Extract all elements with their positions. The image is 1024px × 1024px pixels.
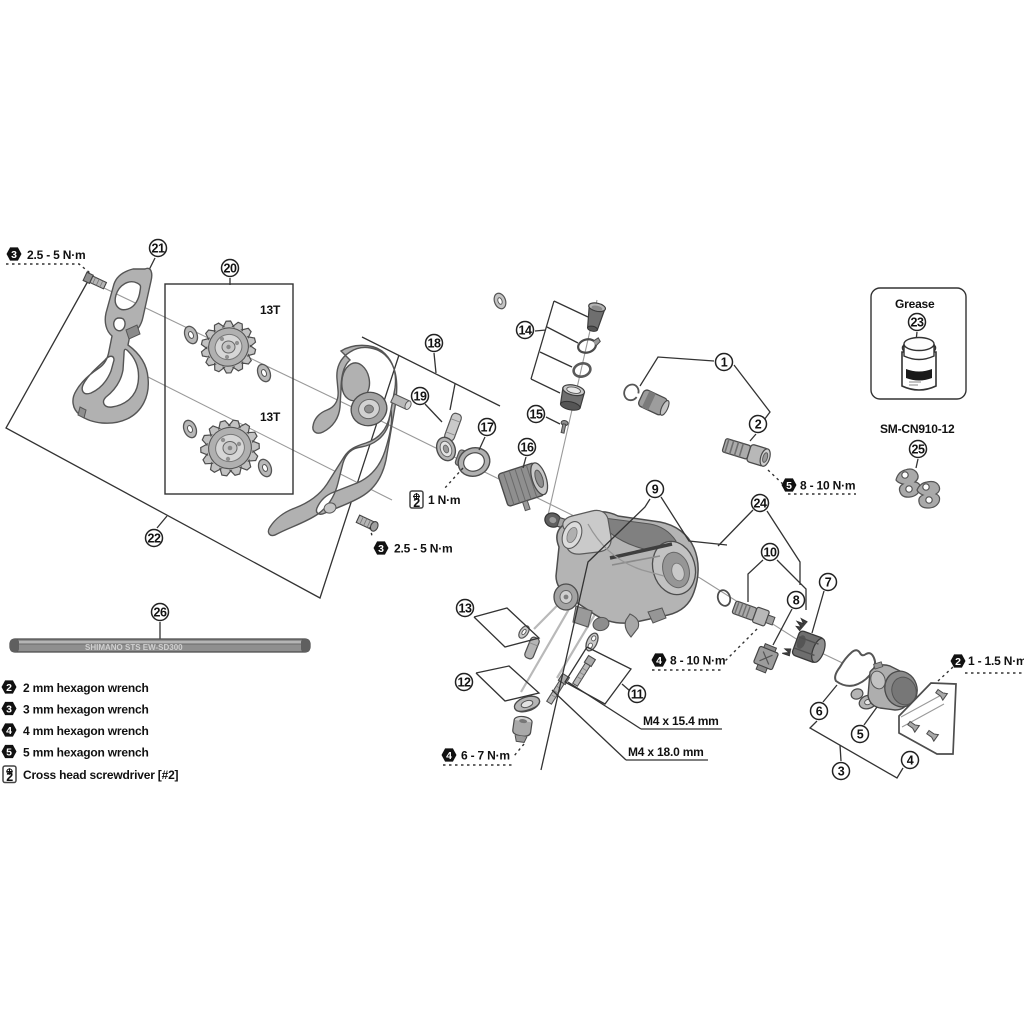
svg-text:6 - 7 N·m: 6 - 7 N·m [461,749,510,763]
svg-text:3: 3 [11,249,17,261]
svg-text:2.5 - 5 N·m: 2.5 - 5 N·m [394,542,453,556]
svg-text:8 - 10 N·m: 8 - 10 N·m [670,654,725,668]
svg-text:1 - 1.5 N·m: 1 - 1.5 N·m [968,654,1024,668]
svg-text:9: 9 [652,483,659,497]
svg-text:5 mm hexagon wrench: 5 mm hexagon wrench [23,746,149,760]
svg-text:8 - 10 N·m: 8 - 10 N·m [800,479,855,493]
svg-text:3 mm hexagon wrench: 3 mm hexagon wrench [23,703,149,717]
svg-text:Grease: Grease [895,297,935,311]
svg-text:23: 23 [911,316,924,330]
svg-text:Cross head screwdriver [#2]: Cross head screwdriver [#2] [23,768,179,782]
svg-text:4 mm hexagon wrench: 4 mm hexagon wrench [23,724,149,738]
svg-text:10: 10 [764,546,777,560]
svg-text:2: 2 [755,418,762,432]
svg-text:SHIMANO STS EW-SD300: SHIMANO STS EW-SD300 [85,643,183,652]
svg-text:2.5 - 5 N·m: 2.5 - 5 N·m [27,248,86,262]
svg-text:2: 2 [413,496,420,510]
svg-text:2: 2 [955,656,961,668]
svg-text:SM-CN910-12: SM-CN910-12 [880,422,955,436]
svg-text:2 mm hexagon wrench: 2 mm hexagon wrench [23,681,149,695]
svg-text:8: 8 [793,594,800,608]
svg-text:19: 19 [414,390,427,404]
svg-text:M4 x 15.4 mm: M4 x 15.4 mm [643,714,719,728]
svg-text:15: 15 [530,408,543,422]
svg-text:3: 3 [838,765,845,779]
svg-text:3: 3 [378,543,384,555]
svg-text:14: 14 [519,324,532,338]
svg-text:6: 6 [816,705,823,719]
svg-text:26: 26 [154,606,167,620]
svg-text:1 N·m: 1 N·m [428,493,460,507]
svg-text:25: 25 [912,443,925,457]
svg-text:4: 4 [446,750,452,762]
svg-text:2: 2 [6,770,13,784]
svg-text:M4 x 18.0 mm: M4 x 18.0 mm [628,745,704,759]
svg-text:1: 1 [721,356,728,370]
svg-text:13: 13 [459,602,472,616]
svg-text:20: 20 [224,262,237,276]
svg-text:22: 22 [148,532,161,546]
svg-text:4: 4 [6,725,12,737]
svg-text:3: 3 [6,704,12,716]
svg-text:5: 5 [6,747,12,759]
svg-text:13T: 13T [260,410,281,424]
svg-text:12: 12 [458,676,471,690]
svg-text:21: 21 [152,242,165,256]
svg-text:11: 11 [631,688,644,702]
svg-text:16: 16 [521,441,534,455]
svg-text:17: 17 [481,421,494,435]
svg-text:13T: 13T [260,303,281,317]
svg-text:2: 2 [6,682,12,694]
svg-text:5: 5 [857,728,864,742]
svg-text:5: 5 [786,480,792,492]
svg-text:4: 4 [907,754,914,768]
svg-text:7: 7 [825,576,832,590]
svg-text:18: 18 [428,337,441,351]
svg-text:4: 4 [656,655,662,667]
svg-text:24: 24 [754,497,767,511]
